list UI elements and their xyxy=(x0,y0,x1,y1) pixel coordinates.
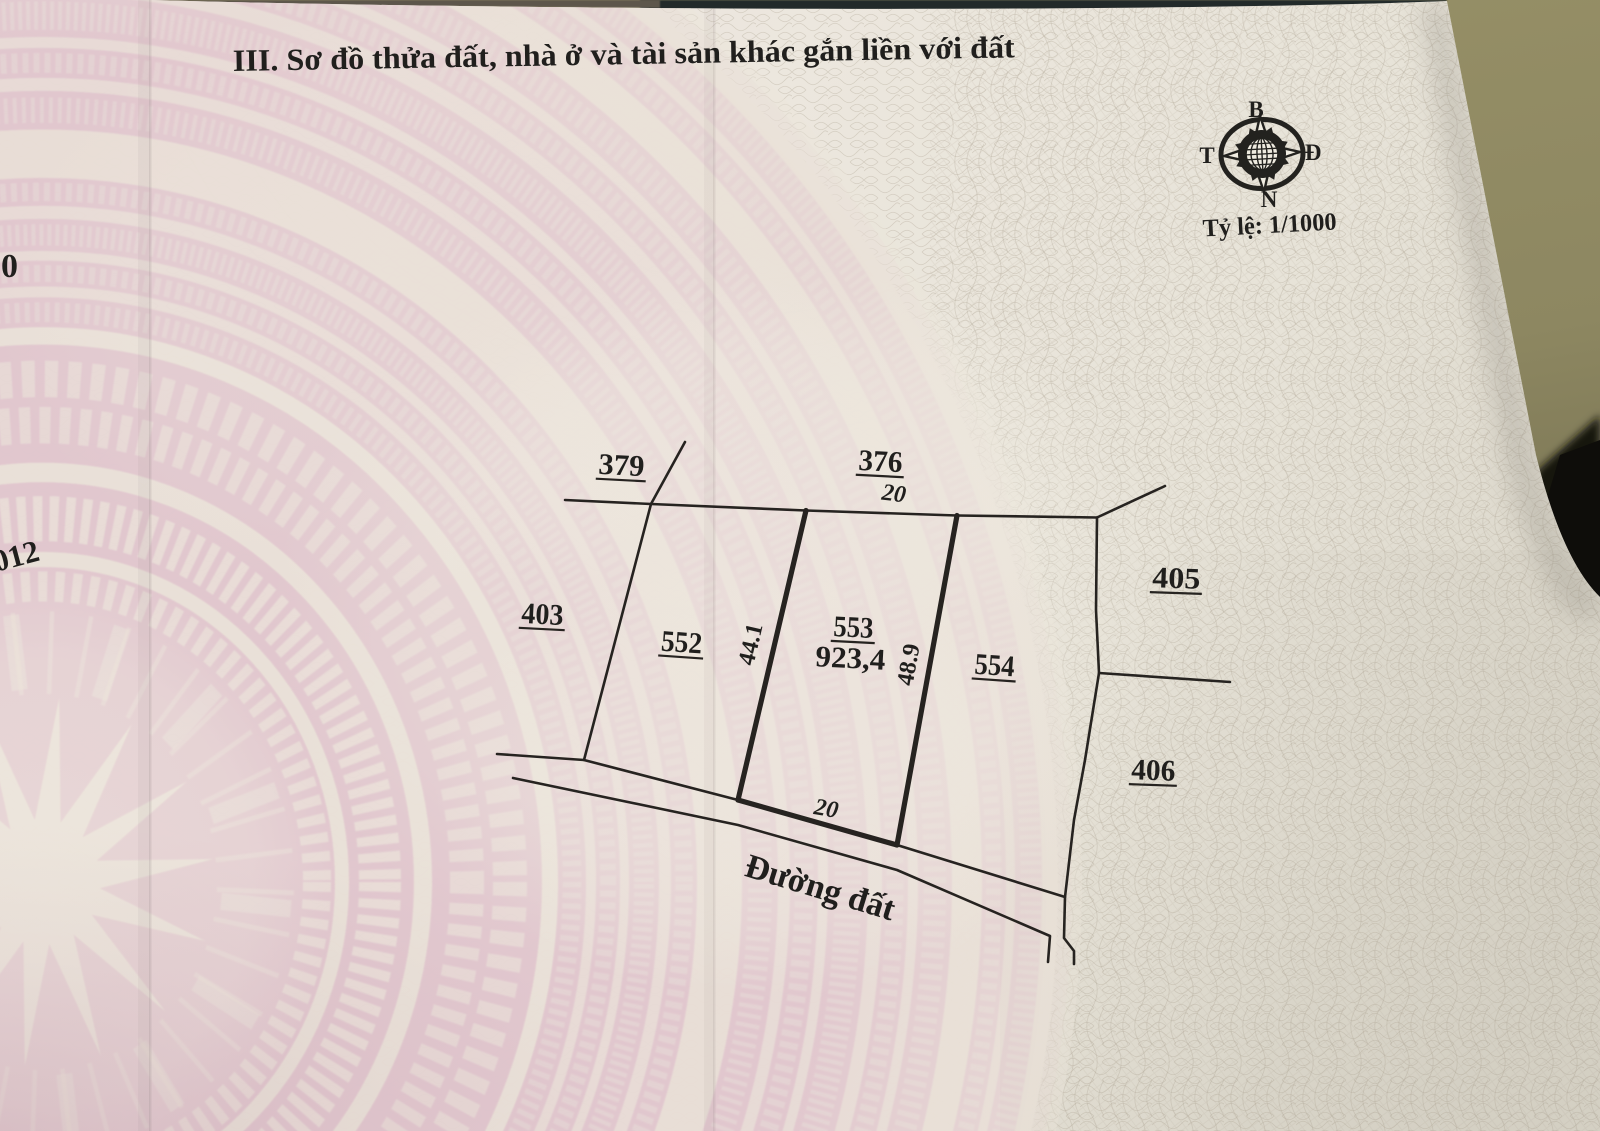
svg-text:Đ: Đ xyxy=(1305,140,1322,165)
svg-text:B: B xyxy=(1248,97,1263,122)
svg-text:N: N xyxy=(1261,187,1278,212)
svg-text:553: 553 xyxy=(833,610,875,645)
svg-text:379: 379 xyxy=(598,448,646,483)
svg-text:403: 403 xyxy=(521,597,565,632)
svg-text:405: 405 xyxy=(1152,561,1201,596)
svg-text:0: 0 xyxy=(1,248,18,285)
svg-text:376: 376 xyxy=(858,444,904,479)
svg-text:406: 406 xyxy=(1131,753,1176,788)
svg-text:20: 20 xyxy=(811,794,840,824)
svg-text:T: T xyxy=(1199,143,1214,168)
svg-text:923,4: 923,4 xyxy=(815,640,887,677)
svg-text:20: 20 xyxy=(879,480,907,509)
